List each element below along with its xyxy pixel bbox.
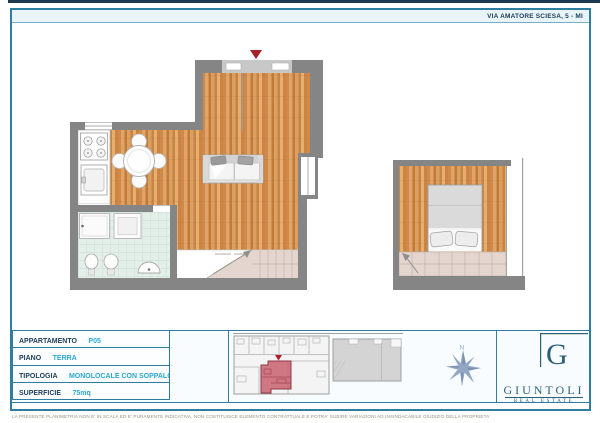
row-value: P05 bbox=[88, 338, 100, 345]
site-plan-unit-highlight bbox=[261, 361, 291, 393]
bathtub bbox=[80, 214, 110, 239]
row-value: TERRA bbox=[53, 355, 77, 362]
panel-divider bbox=[228, 331, 229, 403]
logo-tagline: REAL ESTATE bbox=[500, 399, 588, 404]
disclaimer-text: LA PRESENTE PLANIMETRIA NON E' IN SCALA … bbox=[12, 414, 587, 419]
address-text: VIA AMATORE SCIESA, 5 - MI bbox=[487, 10, 583, 23]
floor-plan-page: VIA AMATORE SCIESA, 5 - MI bbox=[0, 0, 600, 423]
logo-rule bbox=[505, 397, 583, 398]
compass-rose-icon: N bbox=[438, 340, 490, 392]
panel-divider bbox=[496, 331, 497, 403]
logo-name: GIUNTOLI bbox=[500, 383, 588, 398]
mezzanine-stair-void bbox=[399, 252, 506, 277]
staircase bbox=[177, 250, 298, 278]
bed bbox=[428, 185, 482, 252]
top-edge-strip bbox=[8, 0, 600, 3]
row-label: TIPOLOGIA bbox=[19, 373, 58, 380]
logo-monogram: G bbox=[546, 338, 568, 371]
row-value: 75mq bbox=[72, 390, 90, 397]
entrance-marker-icon bbox=[250, 50, 262, 59]
table-row-superficie: SUPERFICIE 75mq bbox=[13, 383, 169, 399]
kitchen-sink bbox=[81, 165, 107, 195]
row-value: MONOLOCALE CON SOPPALCO bbox=[69, 373, 169, 380]
table-row-piano: PIANO TERRA bbox=[13, 348, 169, 365]
compass-north-label: N bbox=[460, 345, 465, 352]
mezzanine-plan bbox=[385, 150, 527, 300]
brand-logo: G GIUNTOLI REAL ESTATE bbox=[500, 331, 588, 403]
pillow bbox=[455, 231, 478, 247]
row-label: SUPERFICIE bbox=[19, 390, 61, 397]
site-key-plan bbox=[231, 331, 403, 397]
stove bbox=[81, 133, 108, 160]
table-row-tipologia: TIPOLOGIA MONOLOCALE CON SOPPALCO bbox=[13, 366, 169, 383]
bathroom bbox=[78, 212, 170, 278]
row-label: PIANO bbox=[19, 355, 41, 362]
entrance-door-leaf bbox=[242, 73, 243, 131]
table-row-appartamento: APPARTAMENTO P05 bbox=[13, 331, 169, 348]
sofa bbox=[203, 155, 263, 183]
entry-sidelight bbox=[226, 63, 241, 70]
sofa-pillow bbox=[211, 156, 227, 166]
pillow bbox=[430, 231, 453, 247]
address-bar: VIA AMATORE SCIESA, 5 - MI bbox=[12, 10, 589, 23]
bathroom-door-opening bbox=[153, 206, 170, 213]
row-label: APPARTAMENTO bbox=[19, 338, 77, 345]
entry-sidelight bbox=[272, 63, 289, 70]
logo-monogram-mark: G bbox=[500, 331, 588, 381]
sofa-pillow bbox=[238, 156, 254, 165]
shower-tray bbox=[114, 214, 141, 239]
details-table: APPARTAMENTO P05 PIANO TERRA TIPOLOGIA M… bbox=[12, 330, 170, 400]
main-floor-plan bbox=[55, 45, 325, 310]
site-plan-building bbox=[234, 336, 401, 394]
